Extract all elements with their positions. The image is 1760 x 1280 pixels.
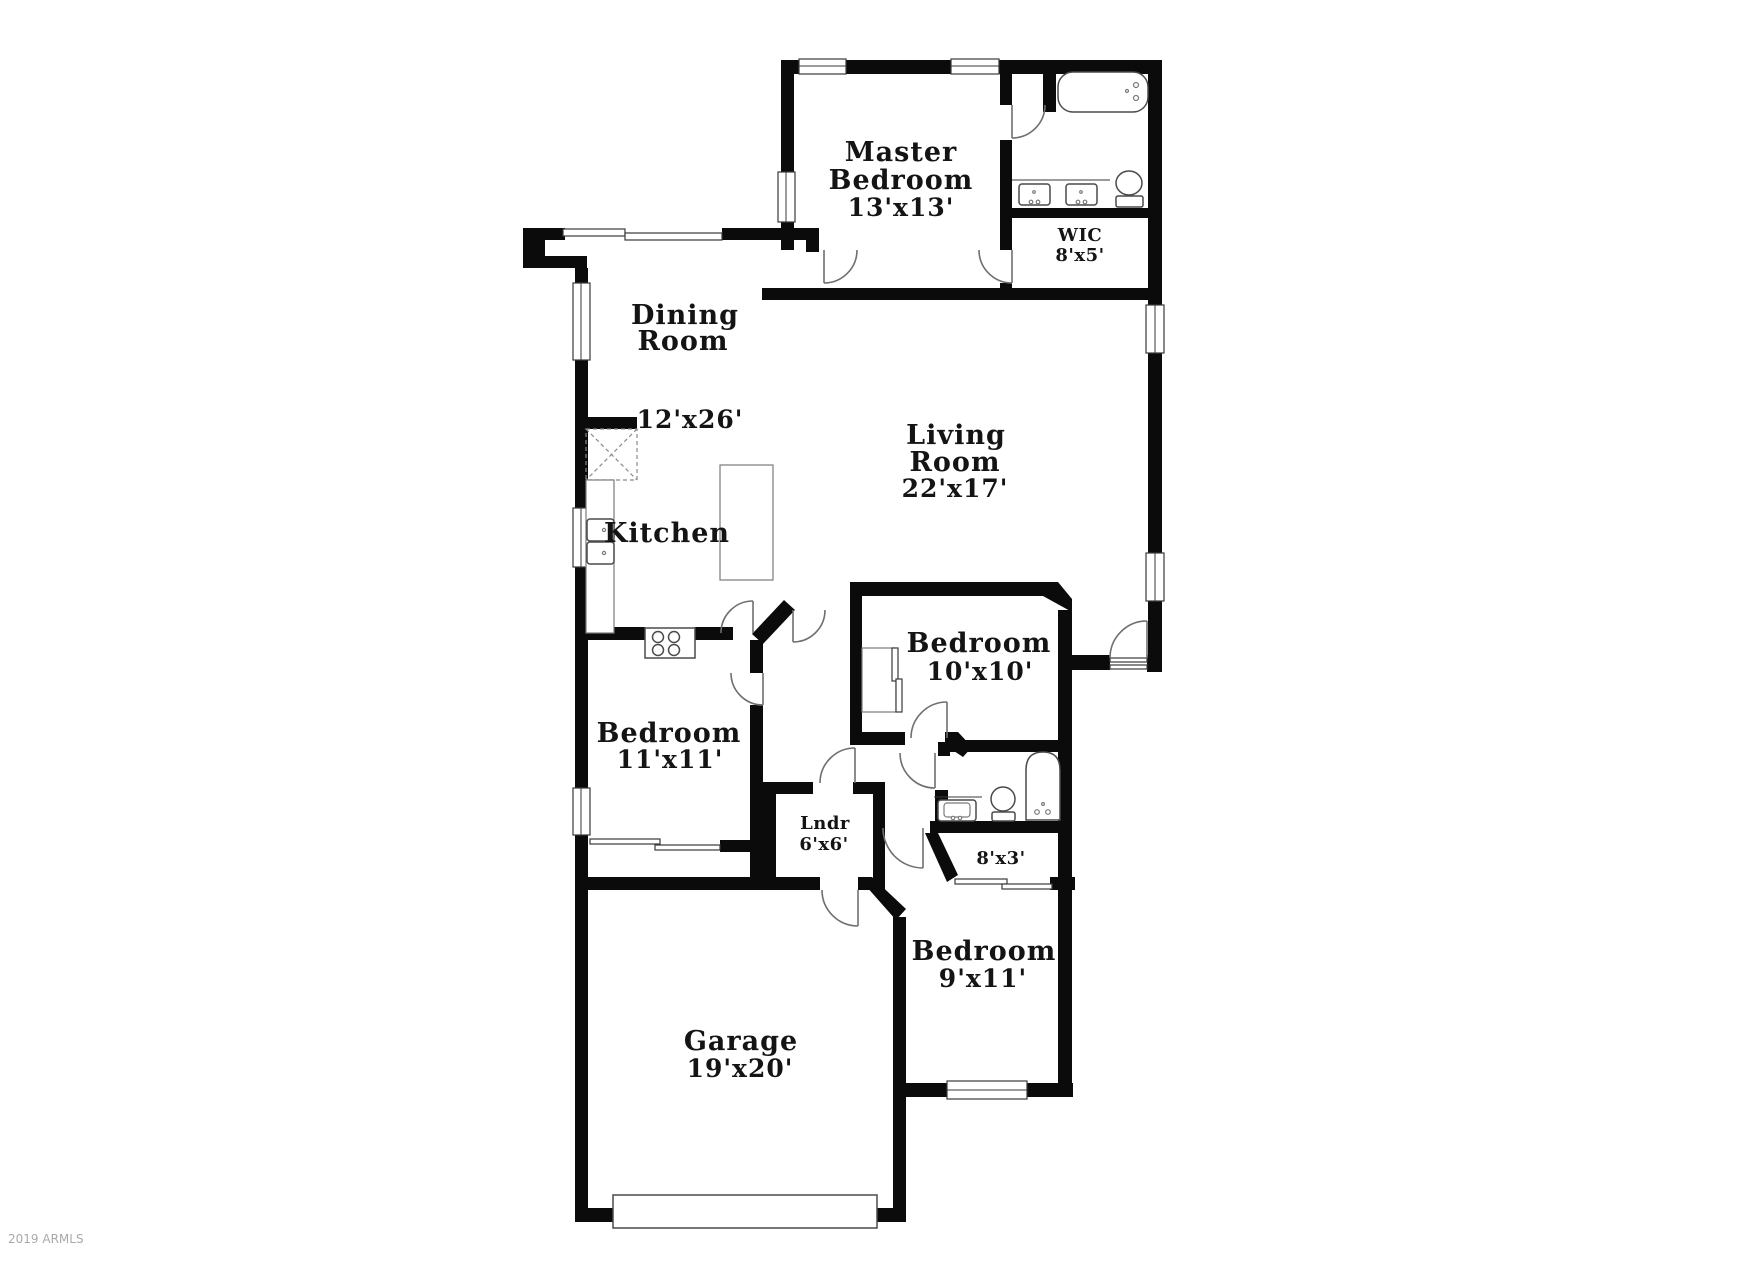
master-top-window-right xyxy=(951,59,999,74)
bedroom9-bottom-window xyxy=(947,1081,1027,1099)
living-exterior-door-sill xyxy=(1110,658,1147,669)
bedroom9-door xyxy=(883,828,923,868)
bedroom10-dims: 10'x10' xyxy=(927,657,1034,686)
master-vanity-double-sink xyxy=(1012,180,1110,205)
dining-dims: 12'x26' xyxy=(637,405,744,434)
master-bath-door xyxy=(1012,105,1045,138)
hall-vanity-sink xyxy=(934,797,982,821)
label-wic: WIC 8'x5' xyxy=(1055,225,1104,266)
hall-entry-door xyxy=(793,610,825,642)
bedroom9-dims: 9'x11' xyxy=(939,964,1027,993)
label-closet-8x3: 8'x3' xyxy=(976,848,1025,869)
hall-toilet xyxy=(991,787,1015,821)
label-kitchen: Kitchen xyxy=(604,518,730,549)
living-right-window-lower xyxy=(1146,553,1164,601)
garage-overhead-door xyxy=(613,1195,877,1228)
living-exterior-door xyxy=(1110,621,1147,658)
bedroom11-dims: 11'x11' xyxy=(617,745,724,774)
living-right-window-upper xyxy=(1146,305,1164,353)
bedroom10-closet xyxy=(862,648,902,712)
label-master-bedroom: Master Bedroom 13'x13' xyxy=(829,137,974,222)
master-bedroom-door xyxy=(824,250,857,283)
master-dims: 13'x13' xyxy=(848,193,955,222)
hall-bathtub xyxy=(1026,752,1060,820)
bedroom11-left-window xyxy=(573,788,590,835)
garage-dims: 19'x20' xyxy=(687,1054,794,1083)
kitchen-stove xyxy=(645,628,695,658)
label-living-room: Living Room 22'x17' xyxy=(902,420,1009,503)
floor-plan-page: Master Bedroom 13'x13' WIC 8'x5' Dining … xyxy=(0,0,1760,1280)
closet-8x3-sliding-doors xyxy=(955,879,1052,889)
garage-name: Garage xyxy=(684,1026,798,1057)
wic-name: WIC xyxy=(1057,225,1102,246)
wic-dims: 8'x5' xyxy=(1055,245,1104,266)
living-dims: 22'x17' xyxy=(902,474,1009,503)
bedroom10-door xyxy=(911,702,947,738)
label-bedroom11: Bedroom 11'x11' xyxy=(597,718,742,774)
laundry-name: Lndr xyxy=(800,813,850,834)
laundry-dims: 6'x6' xyxy=(799,834,848,855)
master-toilet xyxy=(1116,171,1143,207)
garage-entry-door xyxy=(822,890,858,926)
bedroom10-name: Bedroom xyxy=(907,628,1052,659)
master-name-1: Master xyxy=(845,137,957,168)
bedroom9-name: Bedroom xyxy=(912,936,1057,967)
laundry-door xyxy=(820,748,855,783)
hall-bath-door xyxy=(900,753,935,788)
master-bathtub xyxy=(1058,72,1148,112)
bedroom11-door xyxy=(731,673,763,705)
kitchen-pantry xyxy=(586,417,637,480)
label-laundry: Lndr 6'x6' xyxy=(799,813,850,855)
master-name-2: Bedroom xyxy=(829,165,974,196)
bedroom11-closet-sliding-doors xyxy=(590,839,720,850)
armls-watermark: 2019 ARMLS xyxy=(8,1232,84,1246)
closet-dims: 8'x3' xyxy=(976,848,1025,869)
floor-plan-drawing: Master Bedroom 13'x13' WIC 8'x5' Dining … xyxy=(0,0,1760,1280)
dining-left-window xyxy=(573,283,590,360)
label-dining-room: Dining Room 12'x26' xyxy=(631,300,743,434)
wic-door xyxy=(979,250,1012,283)
kitchen-name: Kitchen xyxy=(604,518,730,549)
entry-porch-glazing xyxy=(563,229,722,240)
dining-name-2: Room xyxy=(637,326,728,357)
label-garage: Garage 19'x20' xyxy=(684,1026,798,1083)
label-bedroom10: Bedroom 10'x10' xyxy=(907,628,1052,686)
master-left-window xyxy=(778,172,795,222)
label-bedroom9: Bedroom 9'x11' xyxy=(912,936,1057,993)
master-top-window-left xyxy=(799,59,846,74)
